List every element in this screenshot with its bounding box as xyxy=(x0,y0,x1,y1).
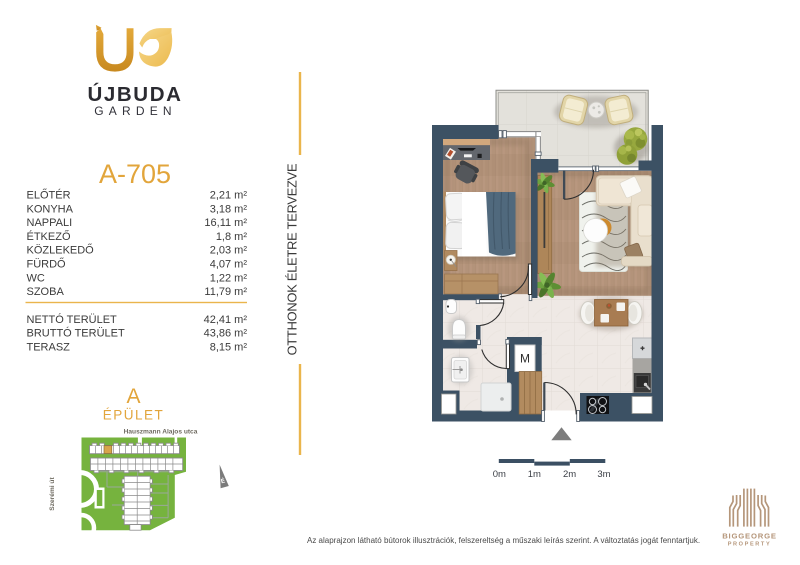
svg-text:1,8 m²: 1,8 m² xyxy=(216,231,248,243)
svg-text:A-705: A-705 xyxy=(99,159,171,189)
svg-text:Szerémi út: Szerémi út xyxy=(49,477,56,511)
svg-text:A: A xyxy=(126,385,140,408)
svg-text:KONYHA: KONYHA xyxy=(27,203,74,215)
svg-text:16,11 m²: 16,11 m² xyxy=(204,217,247,229)
svg-text:11,79 m²: 11,79 m² xyxy=(204,286,247,298)
svg-text:43,86 m²: 43,86 m² xyxy=(204,328,248,340)
svg-text:NAPPALI: NAPPALI xyxy=(27,217,73,229)
svg-text:3,18 m²: 3,18 m² xyxy=(210,203,248,215)
svg-text:2m: 2m xyxy=(563,469,576,480)
svg-text:8,15 m²: 8,15 m² xyxy=(210,342,248,354)
svg-text:3m: 3m xyxy=(597,469,610,480)
svg-text:GARDEN: GARDEN xyxy=(94,104,177,118)
svg-text:TERASZ: TERASZ xyxy=(27,342,71,354)
svg-text:M: M xyxy=(520,352,530,366)
svg-text:2,21 m²: 2,21 m² xyxy=(210,190,248,202)
svg-text:BIGGEORGE: BIGGEORGE xyxy=(722,532,777,541)
svg-text:KÖZLEKEDŐ: KÖZLEKEDŐ xyxy=(27,243,95,257)
svg-text:42,41 m²: 42,41 m² xyxy=(204,314,248,326)
svg-text:4,07 m²: 4,07 m² xyxy=(210,259,248,271)
svg-text:1m: 1m xyxy=(528,469,541,480)
svg-text:ÉTKEZŐ: ÉTKEZŐ xyxy=(27,229,71,243)
svg-text:FÜRDŐ: FÜRDŐ xyxy=(27,257,67,271)
svg-text:PROPERTY: PROPERTY xyxy=(728,542,772,548)
svg-text:2,03 m²: 2,03 m² xyxy=(210,245,248,257)
svg-text:Az alaprajzon látható bútorok: Az alaprajzon látható bútorok illusztrác… xyxy=(307,536,700,545)
svg-text:ÉPÜLET: ÉPÜLET xyxy=(103,408,165,423)
svg-text:0m: 0m xyxy=(493,469,506,480)
svg-text:WC: WC xyxy=(27,272,45,284)
svg-text:1,22 m²: 1,22 m² xyxy=(210,272,248,284)
svg-text:OTTHONOK ÉLETRE TERVEZVE: OTTHONOK ÉLETRE TERVEZVE xyxy=(285,164,300,356)
svg-text:Hauszmann Alajos utca: Hauszmann Alajos utca xyxy=(124,429,198,436)
svg-text:NETTÓ TERÜLET: NETTÓ TERÜLET xyxy=(27,313,118,326)
svg-text:BRUTTÓ TERÜLET: BRUTTÓ TERÜLET xyxy=(27,327,125,340)
svg-text:SZOBA: SZOBA xyxy=(27,286,65,298)
svg-text:ÚJBUDA: ÚJBUDA xyxy=(87,82,182,106)
svg-text:ELŐTÉR: ELŐTÉR xyxy=(27,188,71,202)
